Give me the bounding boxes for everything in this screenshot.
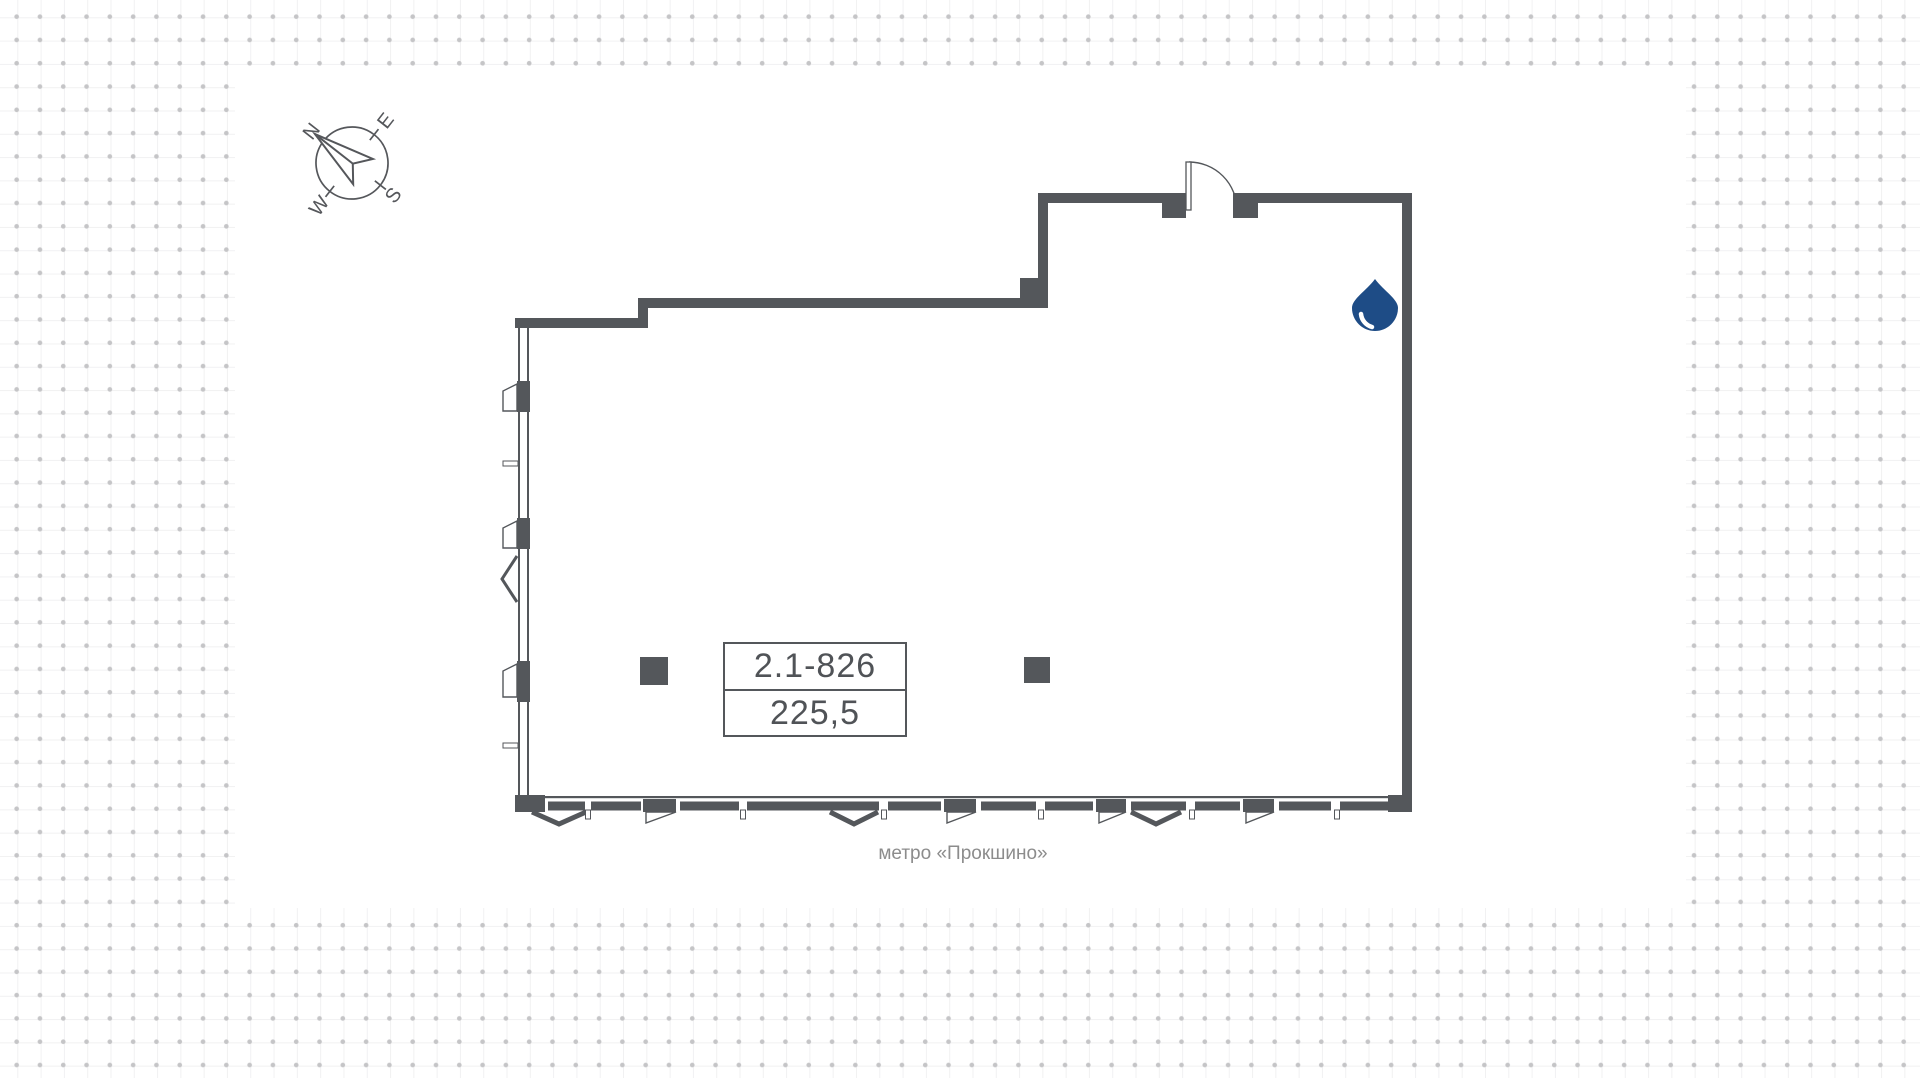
- door-swing-icon: [1186, 162, 1237, 210]
- column-marker: [640, 657, 668, 685]
- unit-label-box[interactable]: 2.1-826 225,5: [723, 642, 907, 737]
- compass-label-w: W: [305, 192, 334, 221]
- compass-label-e: E: [373, 109, 399, 133]
- column-marker: [1024, 657, 1050, 683]
- unit-area-value: 225,5: [725, 691, 905, 736]
- window-strip-bottom: [515, 796, 1412, 824]
- unit-code: 2.1-826: [725, 644, 905, 691]
- window-strip-left: [502, 321, 530, 800]
- metro-caption: метро «Прокшино»: [763, 843, 1163, 865]
- floor-plan: N E S W: [0, 0, 1920, 1078]
- compass-rose-icon: N E S W: [264, 77, 440, 252]
- unit-area[interactable]: [529, 203, 1402, 796]
- compass-label-s: S: [381, 184, 407, 208]
